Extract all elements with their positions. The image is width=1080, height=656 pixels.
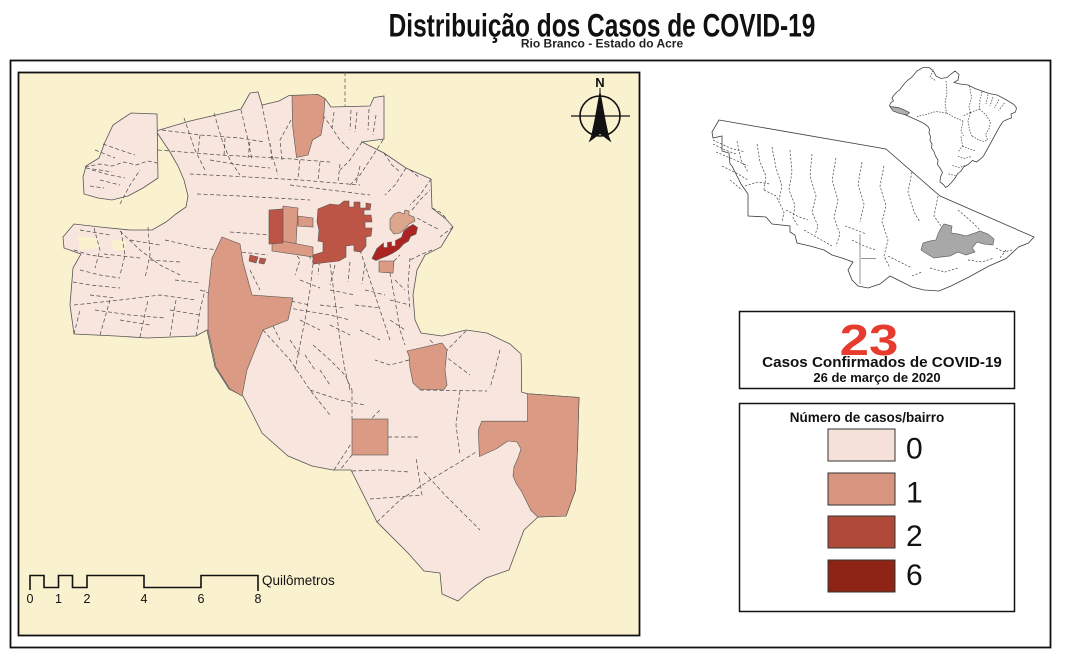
svg-text:8: 8 (255, 592, 262, 606)
svg-text:2: 2 (906, 520, 923, 553)
svg-text:6: 6 (906, 559, 923, 592)
svg-text:Rio Branco - Estado do Acre: Rio Branco - Estado do Acre (521, 37, 684, 51)
svg-text:1: 1 (55, 592, 62, 606)
svg-text:6: 6 (198, 592, 205, 606)
svg-text:N: N (595, 75, 604, 90)
svg-text:0: 0 (906, 433, 923, 466)
svg-text:1: 1 (906, 477, 923, 510)
svg-text:0: 0 (27, 592, 34, 606)
svg-text:26 de março de 2020: 26 de março de 2020 (813, 370, 940, 385)
svg-text:2: 2 (84, 592, 91, 606)
svg-text:Quilômetros: Quilômetros (262, 573, 335, 588)
svg-text:4: 4 (141, 592, 148, 606)
svg-text:Número de casos/bairro: Número de casos/bairro (790, 410, 945, 425)
svg-text:Casos Confirmados de COVID-19: Casos Confirmados de COVID-19 (762, 354, 1002, 371)
